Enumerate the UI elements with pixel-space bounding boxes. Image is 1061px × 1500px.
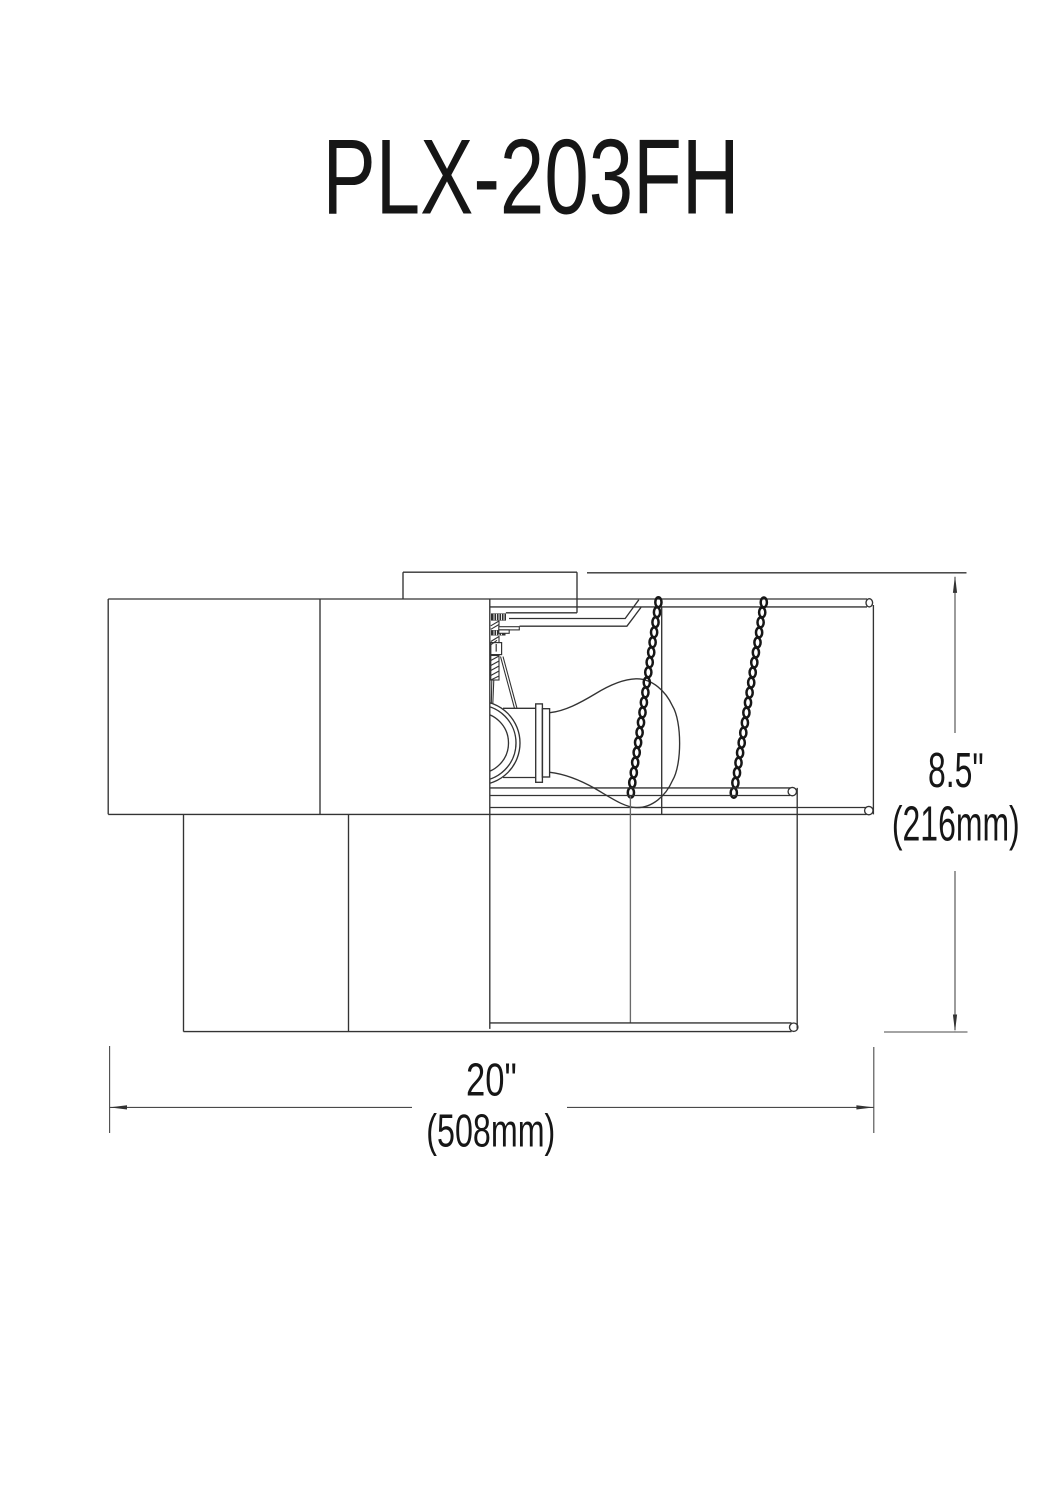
- svg-text:(216mm): (216mm): [892, 798, 1020, 852]
- svg-text:(508mm): (508mm): [426, 1105, 555, 1157]
- svg-text:20": 20": [466, 1054, 517, 1106]
- svg-text:8.5": 8.5": [928, 744, 984, 798]
- svg-text:PLX-203FH: PLX-203FH: [323, 118, 740, 237]
